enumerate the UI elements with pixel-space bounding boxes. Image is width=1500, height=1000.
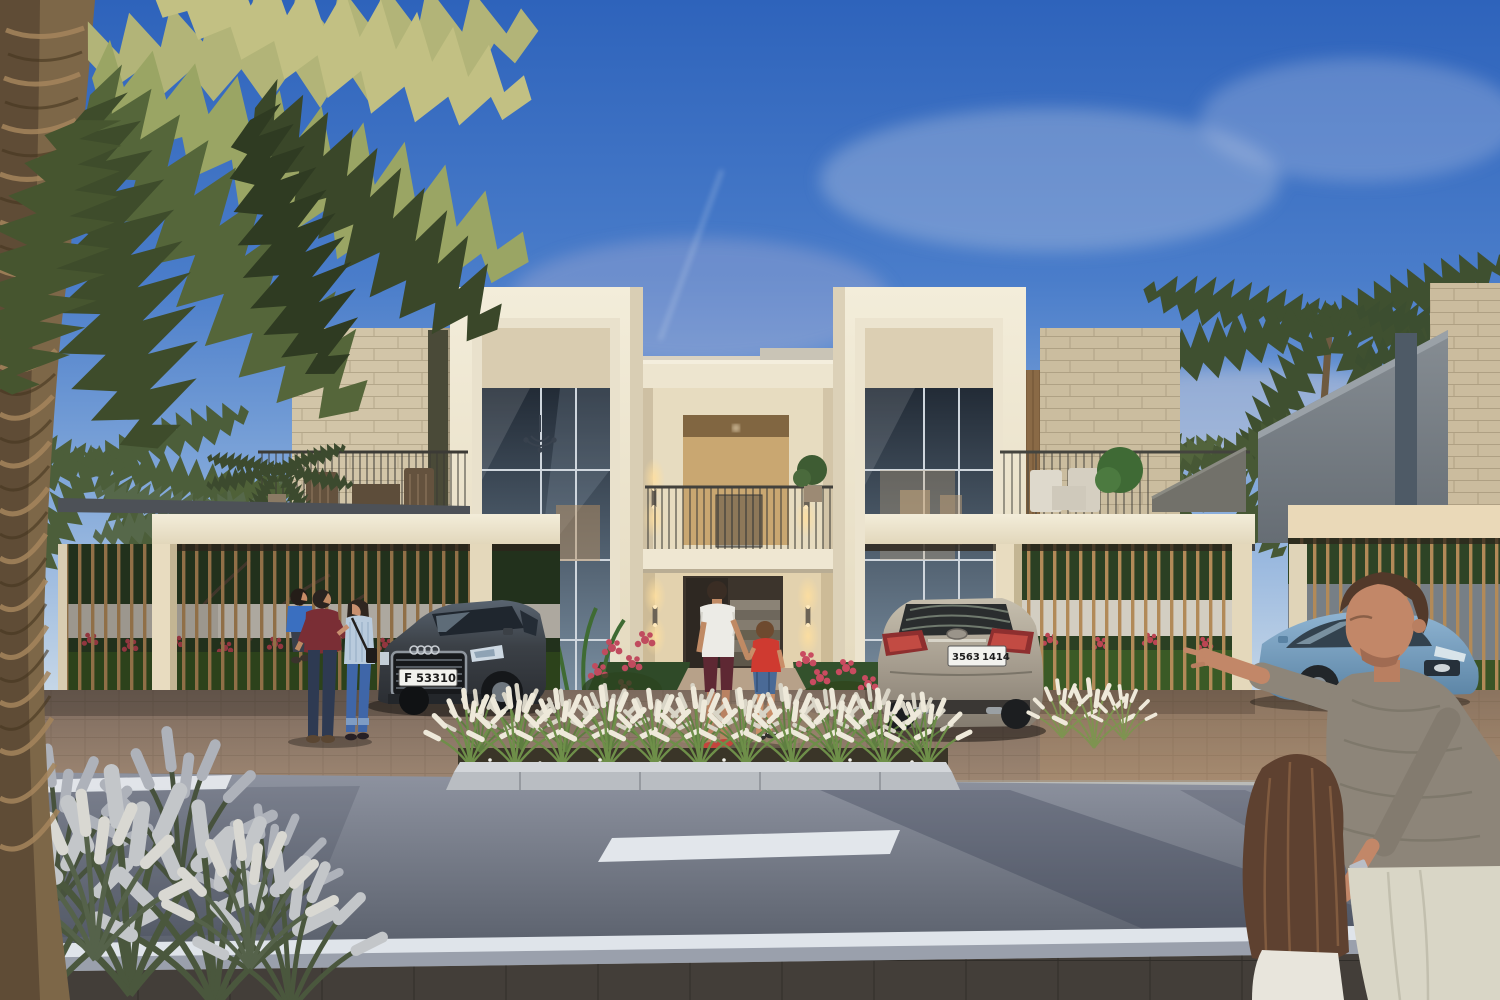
scene-rendering: Townhouse exterior rendering at dusk [0, 0, 1500, 1000]
svg-text:3563: 3563 [952, 652, 980, 663]
license-plate-left: F 53310 [399, 669, 457, 686]
svg-text:53310: 53310 [416, 671, 456, 685]
license-plate-right: 3563 1414 [948, 646, 1010, 666]
daughter [1243, 754, 1349, 1000]
center-recess-upper [643, 388, 833, 552]
held-hands [745, 654, 752, 661]
svg-text:1414: 1414 [982, 652, 1010, 663]
svg-text:F: F [404, 671, 412, 685]
